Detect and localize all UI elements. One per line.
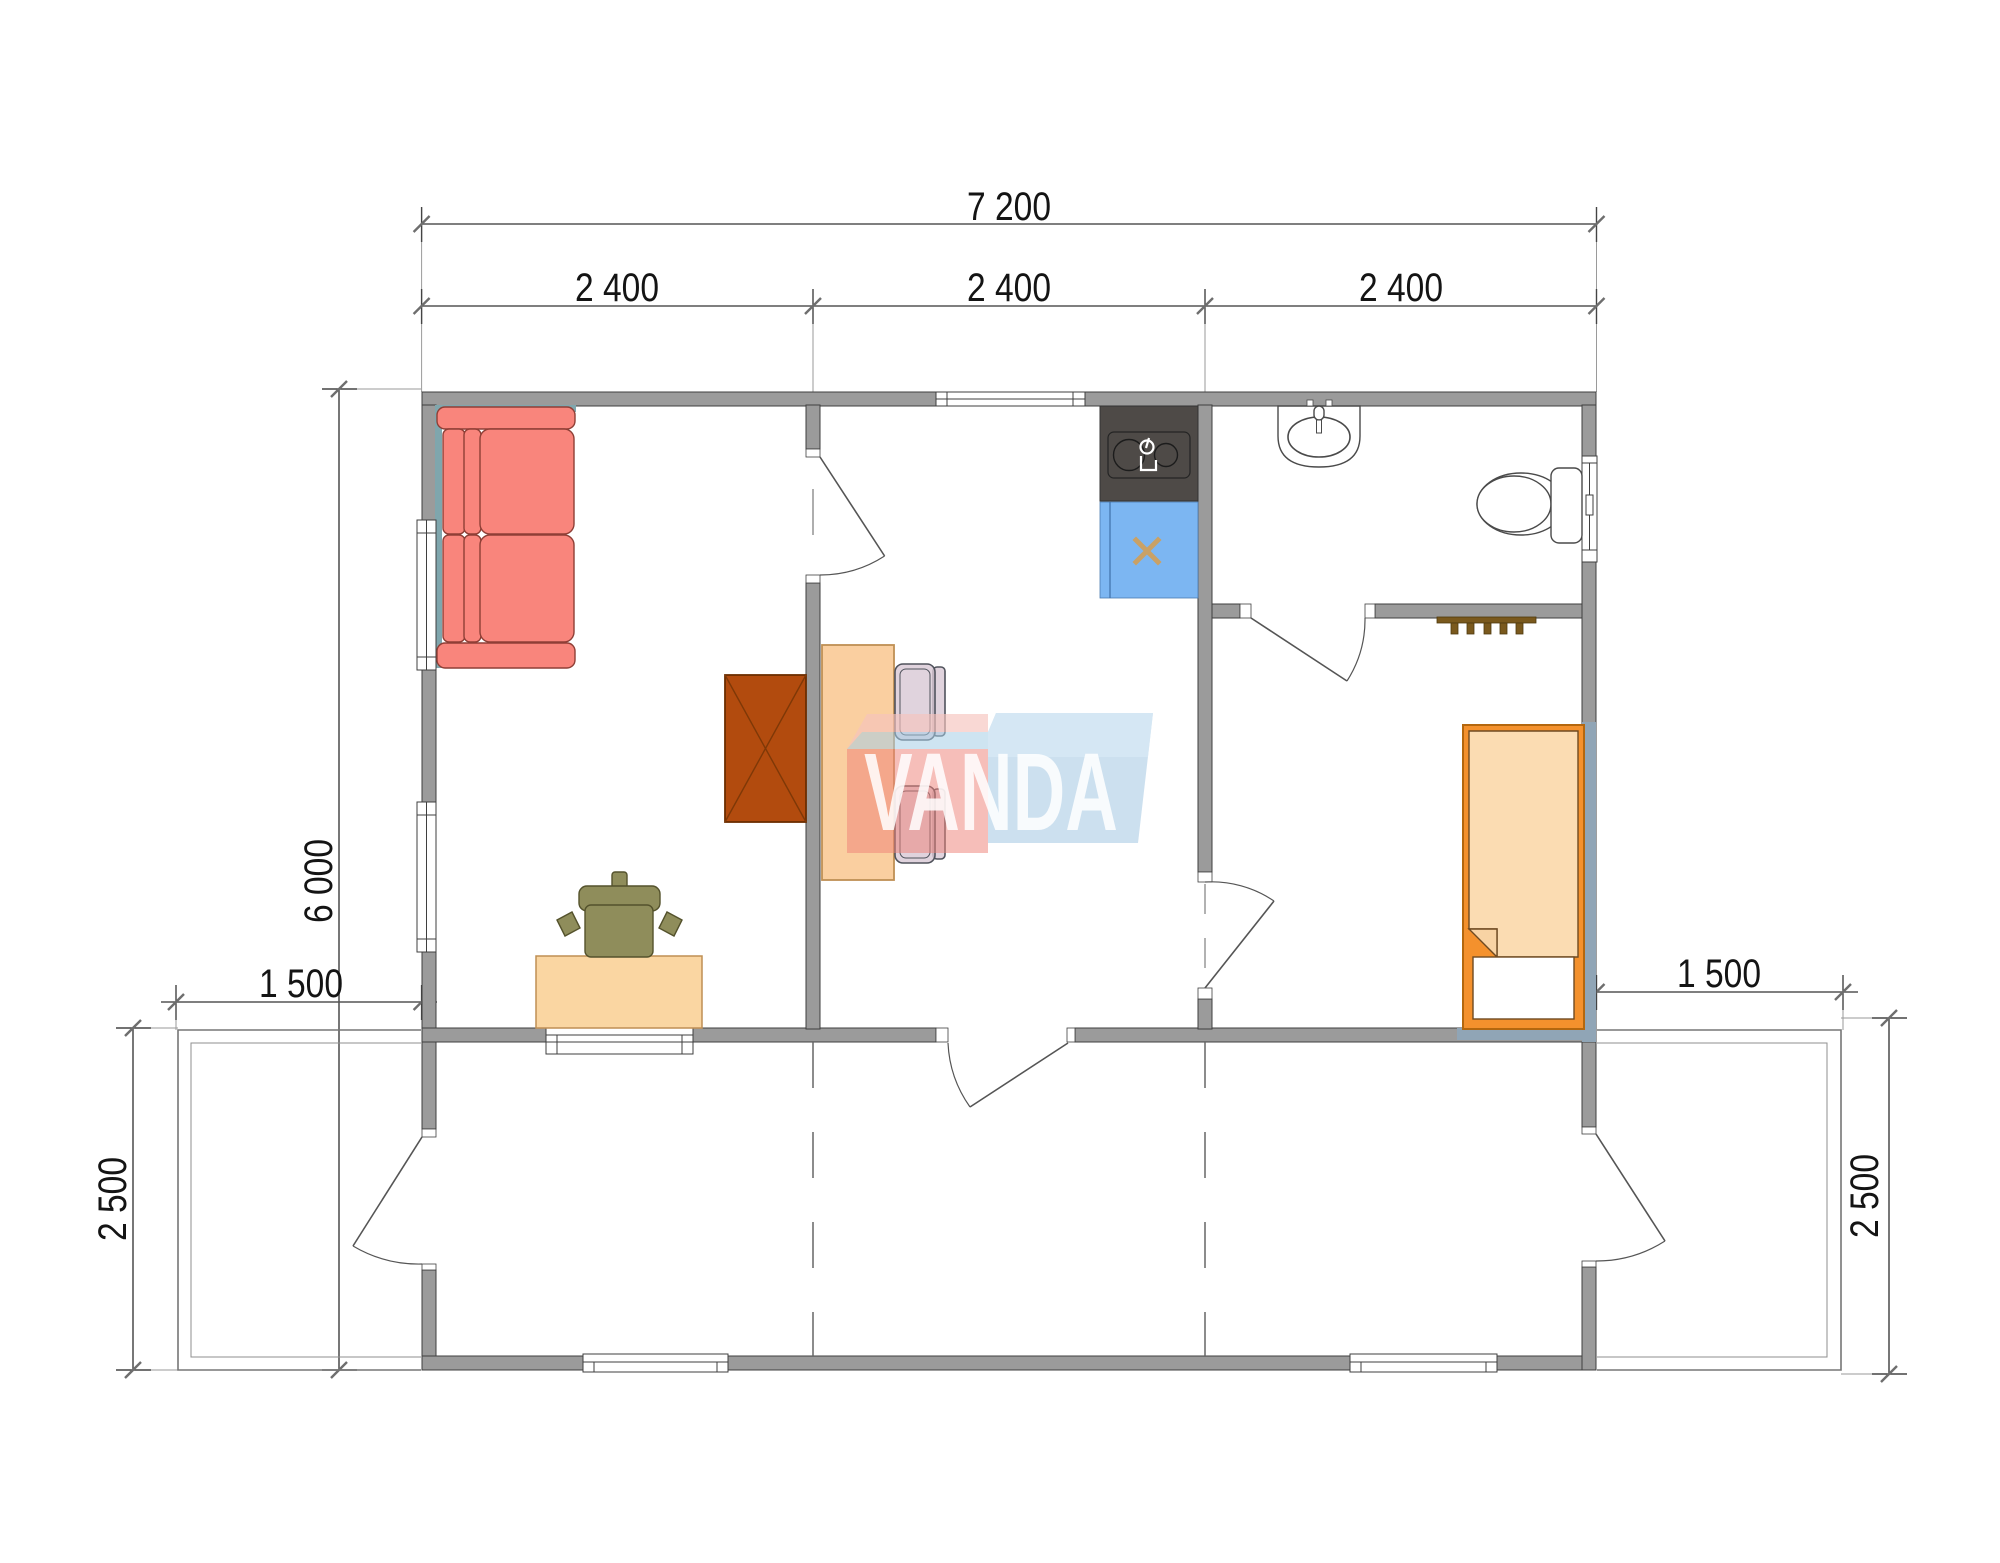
svg-text:2 500: 2 500 [1843,1154,1887,1238]
svg-text:1 500: 1 500 [259,962,343,1006]
svg-text:VANDA: VANDA [864,731,1118,854]
svg-text:2 400: 2 400 [1359,266,1443,310]
svg-text:2 500: 2 500 [91,1157,135,1241]
svg-text:7 200: 7 200 [967,185,1051,229]
svg-text:2 400: 2 400 [575,266,659,310]
svg-text:1 500: 1 500 [1677,952,1761,996]
svg-text:6 000: 6 000 [297,839,341,923]
svg-text:2 400: 2 400 [967,266,1051,310]
